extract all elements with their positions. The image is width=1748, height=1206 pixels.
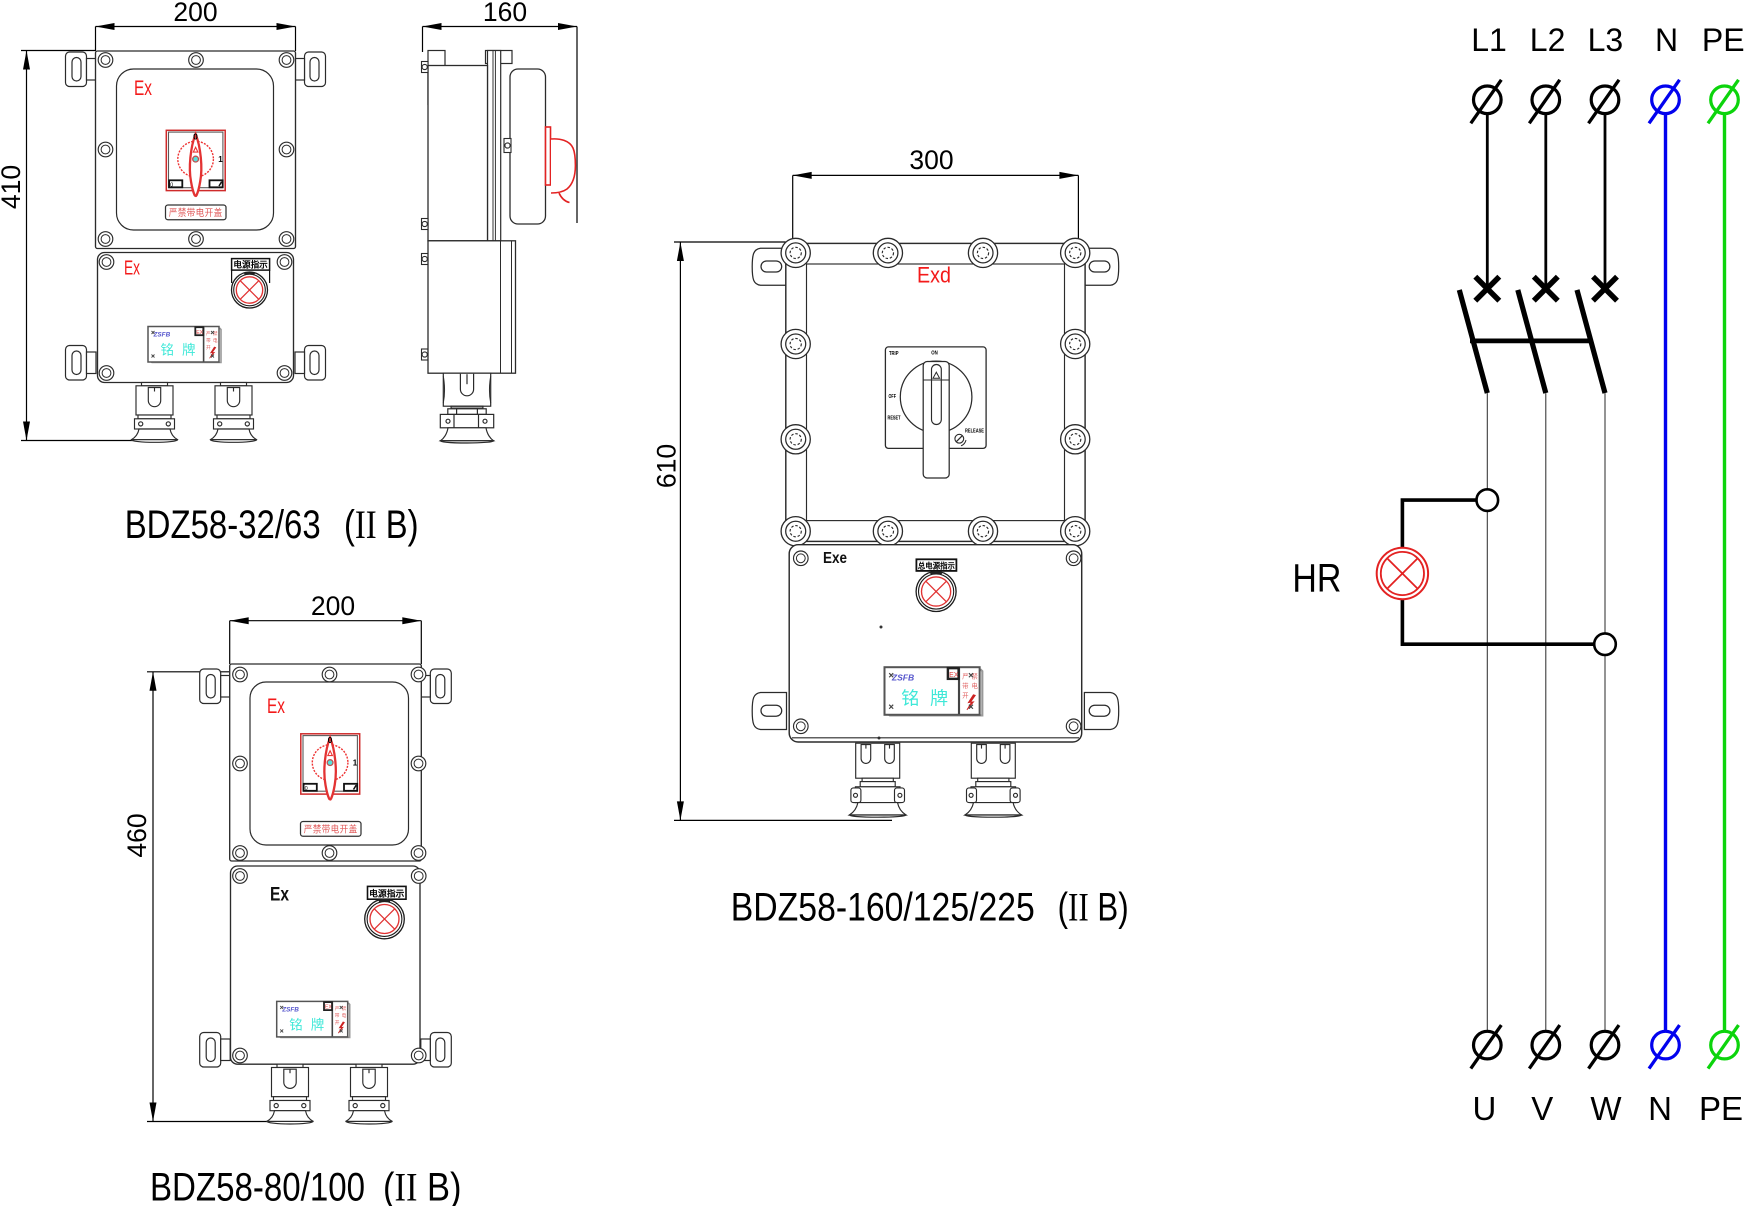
svg-text:电源指示: 电源指示	[233, 259, 268, 270]
svg-text:200: 200	[311, 591, 355, 621]
svg-text:300: 300	[909, 145, 953, 175]
svg-text:BDZ58-80/100: BDZ58-80/100	[150, 1166, 365, 1206]
svg-text:总电源指示: 总电源指示	[918, 560, 955, 570]
svg-text:(II B): (II B)	[1058, 885, 1129, 930]
svg-text:Ex: Ex	[124, 258, 140, 280]
svg-text:OFF: OFF	[889, 394, 897, 400]
svg-text:160: 160	[483, 0, 527, 27]
svg-text:Ex: Ex	[270, 885, 289, 906]
svg-text:Exe: Exe	[823, 550, 847, 567]
svg-text:L3: L3	[1588, 22, 1624, 58]
svg-text:RELEASE: RELEASE	[965, 429, 985, 435]
svg-text:W: W	[1590, 1090, 1622, 1127]
svg-text:TRIP: TRIP	[889, 351, 899, 357]
svg-text:410: 410	[0, 165, 26, 209]
svg-text:(II B): (II B)	[383, 1165, 462, 1206]
svg-text:L1: L1	[1471, 22, 1507, 58]
svg-text:电源指示: 电源指示	[369, 887, 404, 898]
svg-text:PE: PE	[1699, 1090, 1743, 1127]
svg-text:(II B): (II B)	[344, 502, 419, 547]
svg-text:HR: HR	[1292, 557, 1341, 601]
svg-text:460: 460	[122, 813, 152, 857]
svg-text:N: N	[1655, 22, 1678, 58]
svg-text:Exd: Exd	[917, 263, 951, 288]
svg-text:L2: L2	[1530, 22, 1566, 58]
svg-text:BDZ58-32/63: BDZ58-32/63	[125, 503, 321, 547]
svg-text:ON: ON	[931, 351, 938, 357]
svg-text:Ex: Ex	[134, 77, 152, 100]
svg-text:610: 610	[652, 444, 682, 488]
svg-text:U: U	[1472, 1090, 1496, 1127]
svg-text:Ex: Ex	[267, 695, 285, 718]
svg-text:RESET: RESET	[888, 416, 901, 422]
svg-text:200: 200	[173, 0, 217, 27]
svg-text:N: N	[1648, 1090, 1672, 1127]
svg-text:BDZ58-160/125/225: BDZ58-160/125/225	[731, 886, 1035, 930]
svg-text:V: V	[1531, 1090, 1553, 1127]
svg-text:PE: PE	[1702, 22, 1745, 58]
